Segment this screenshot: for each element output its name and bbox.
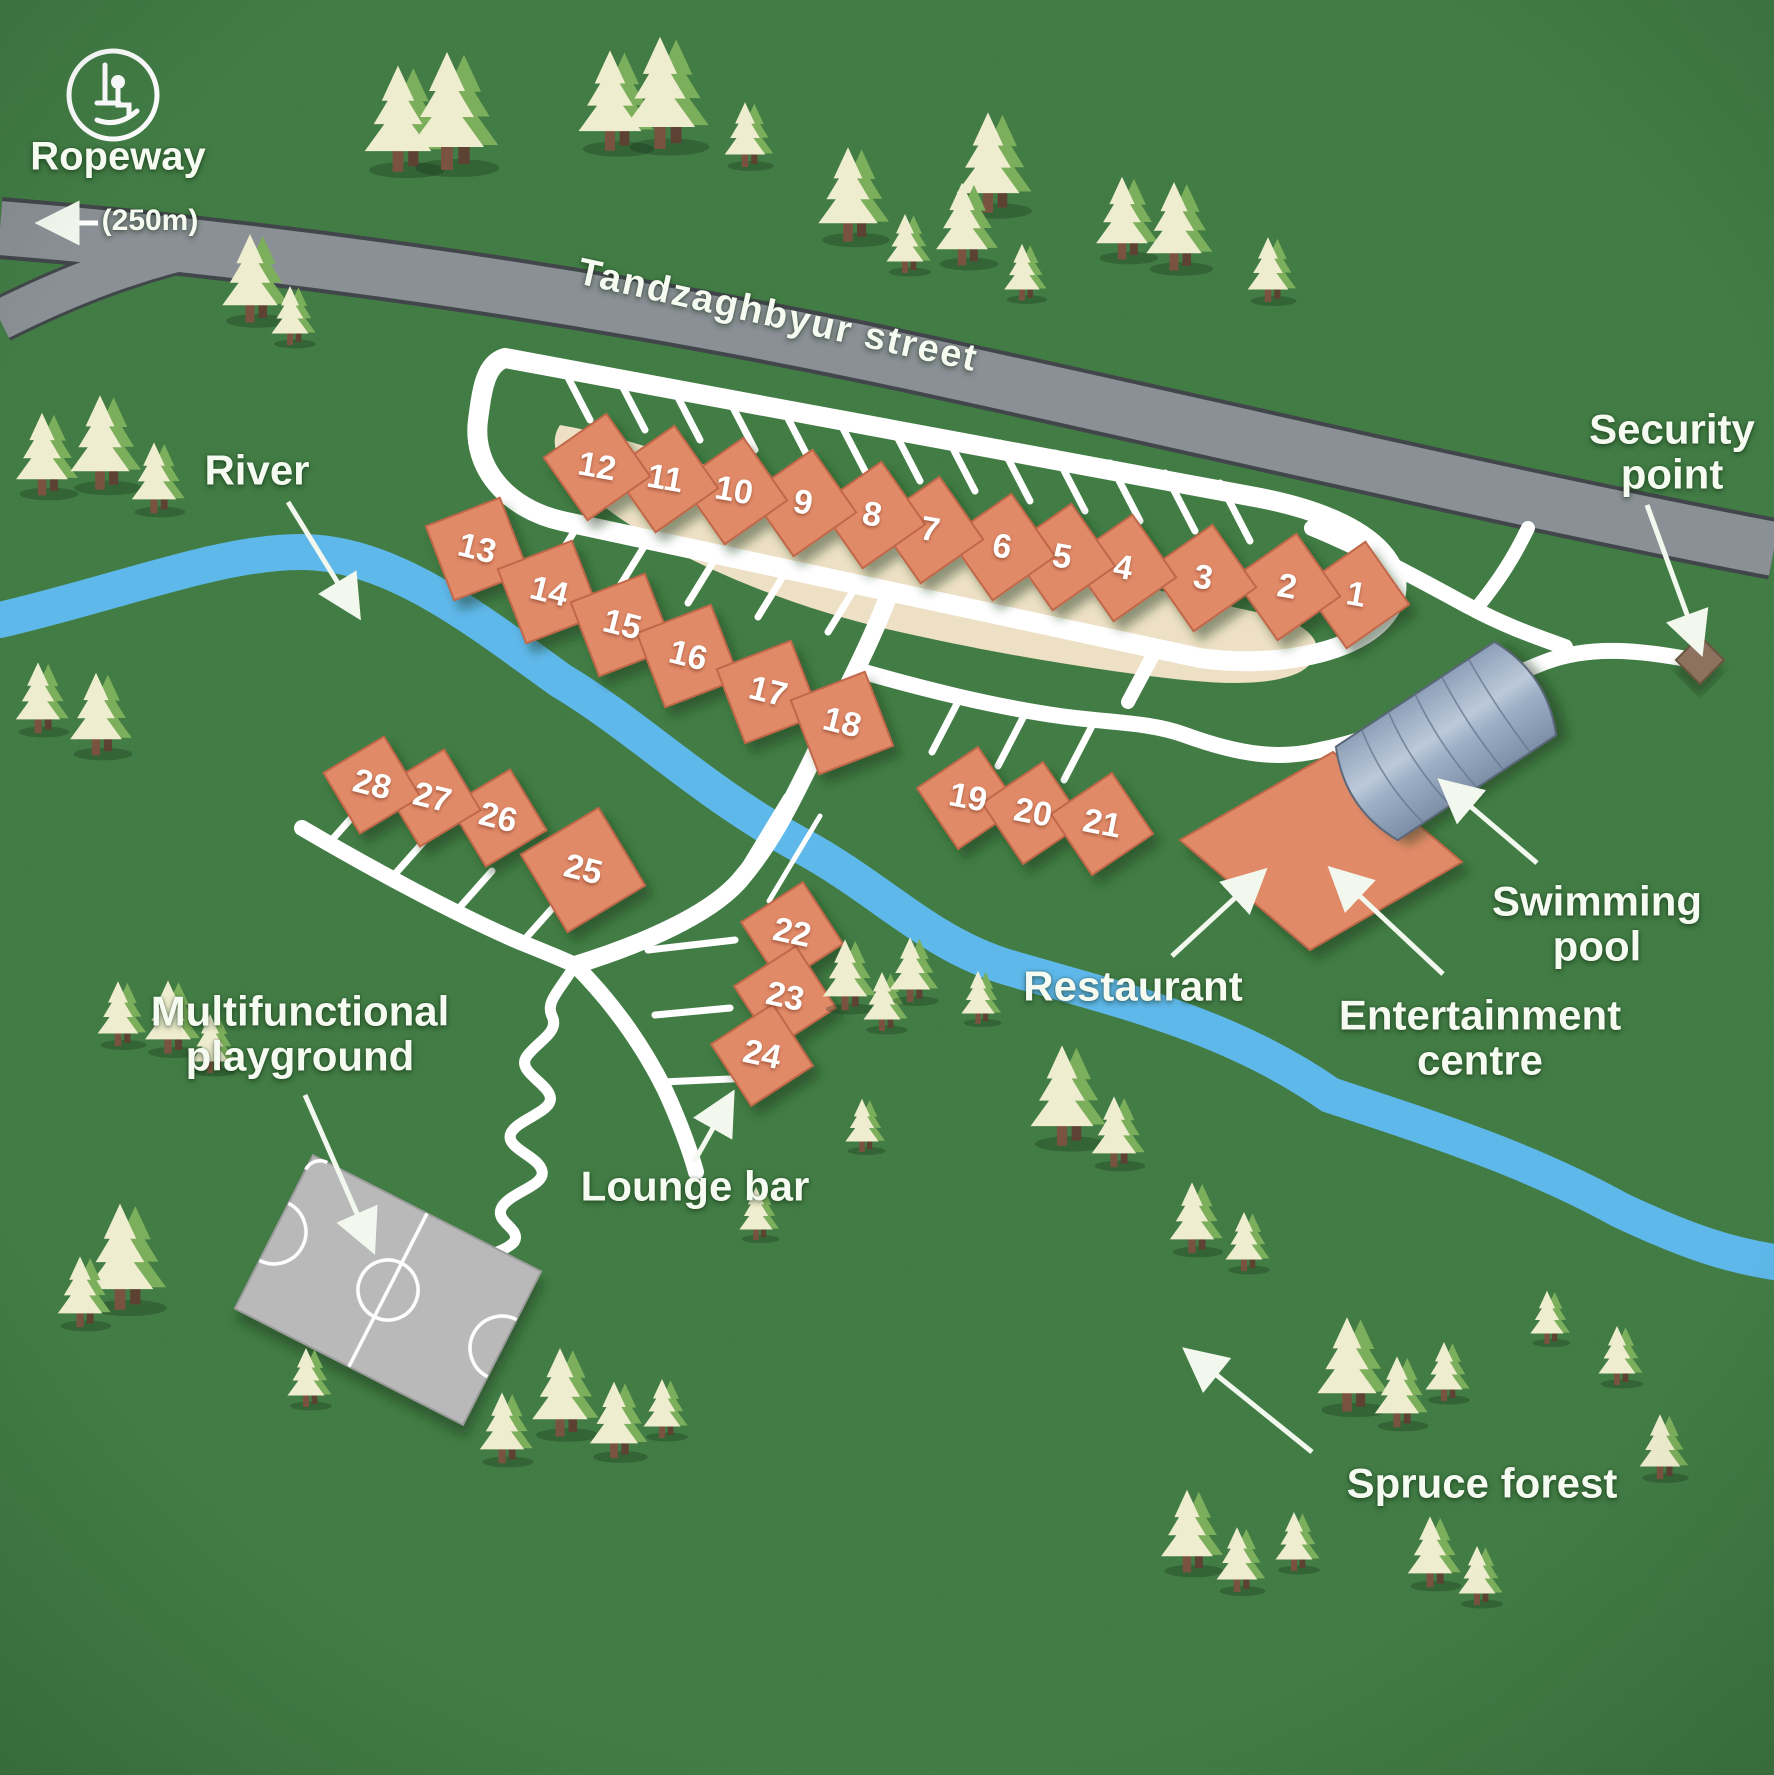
label-lounge-bar: Lounge bar xyxy=(581,1163,810,1208)
building-number-22: 22 xyxy=(769,910,814,956)
resort-map: Ropeway (250m) Tandzaghbyur street River… xyxy=(0,0,1774,1775)
label-multifunctional-playground: Multifunctionalplayground xyxy=(151,989,450,1080)
building-number-24: 24 xyxy=(739,1032,784,1078)
label-swimming-pool: Swimmingpool xyxy=(1492,879,1702,970)
label-distance: (250m) xyxy=(102,205,199,237)
label-restaurant: Restaurant xyxy=(1023,963,1242,1008)
building-number-20: 20 xyxy=(1011,790,1056,836)
building-number-21: 21 xyxy=(1080,801,1125,847)
label-security-point: Securitypoint xyxy=(1589,407,1755,498)
label-ropeway: Ropeway xyxy=(30,135,206,178)
building-number-11: 11 xyxy=(644,457,686,502)
building-number-12: 12 xyxy=(575,445,619,490)
label-spruce-forest: Spruce forest xyxy=(1347,1460,1618,1505)
building-number-19: 19 xyxy=(946,775,991,821)
label-river: River xyxy=(204,447,309,492)
building-number-23: 23 xyxy=(762,974,807,1020)
label-entertainment-centre: Entertainmentcentre xyxy=(1339,993,1621,1084)
building-number-10: 10 xyxy=(712,469,756,514)
